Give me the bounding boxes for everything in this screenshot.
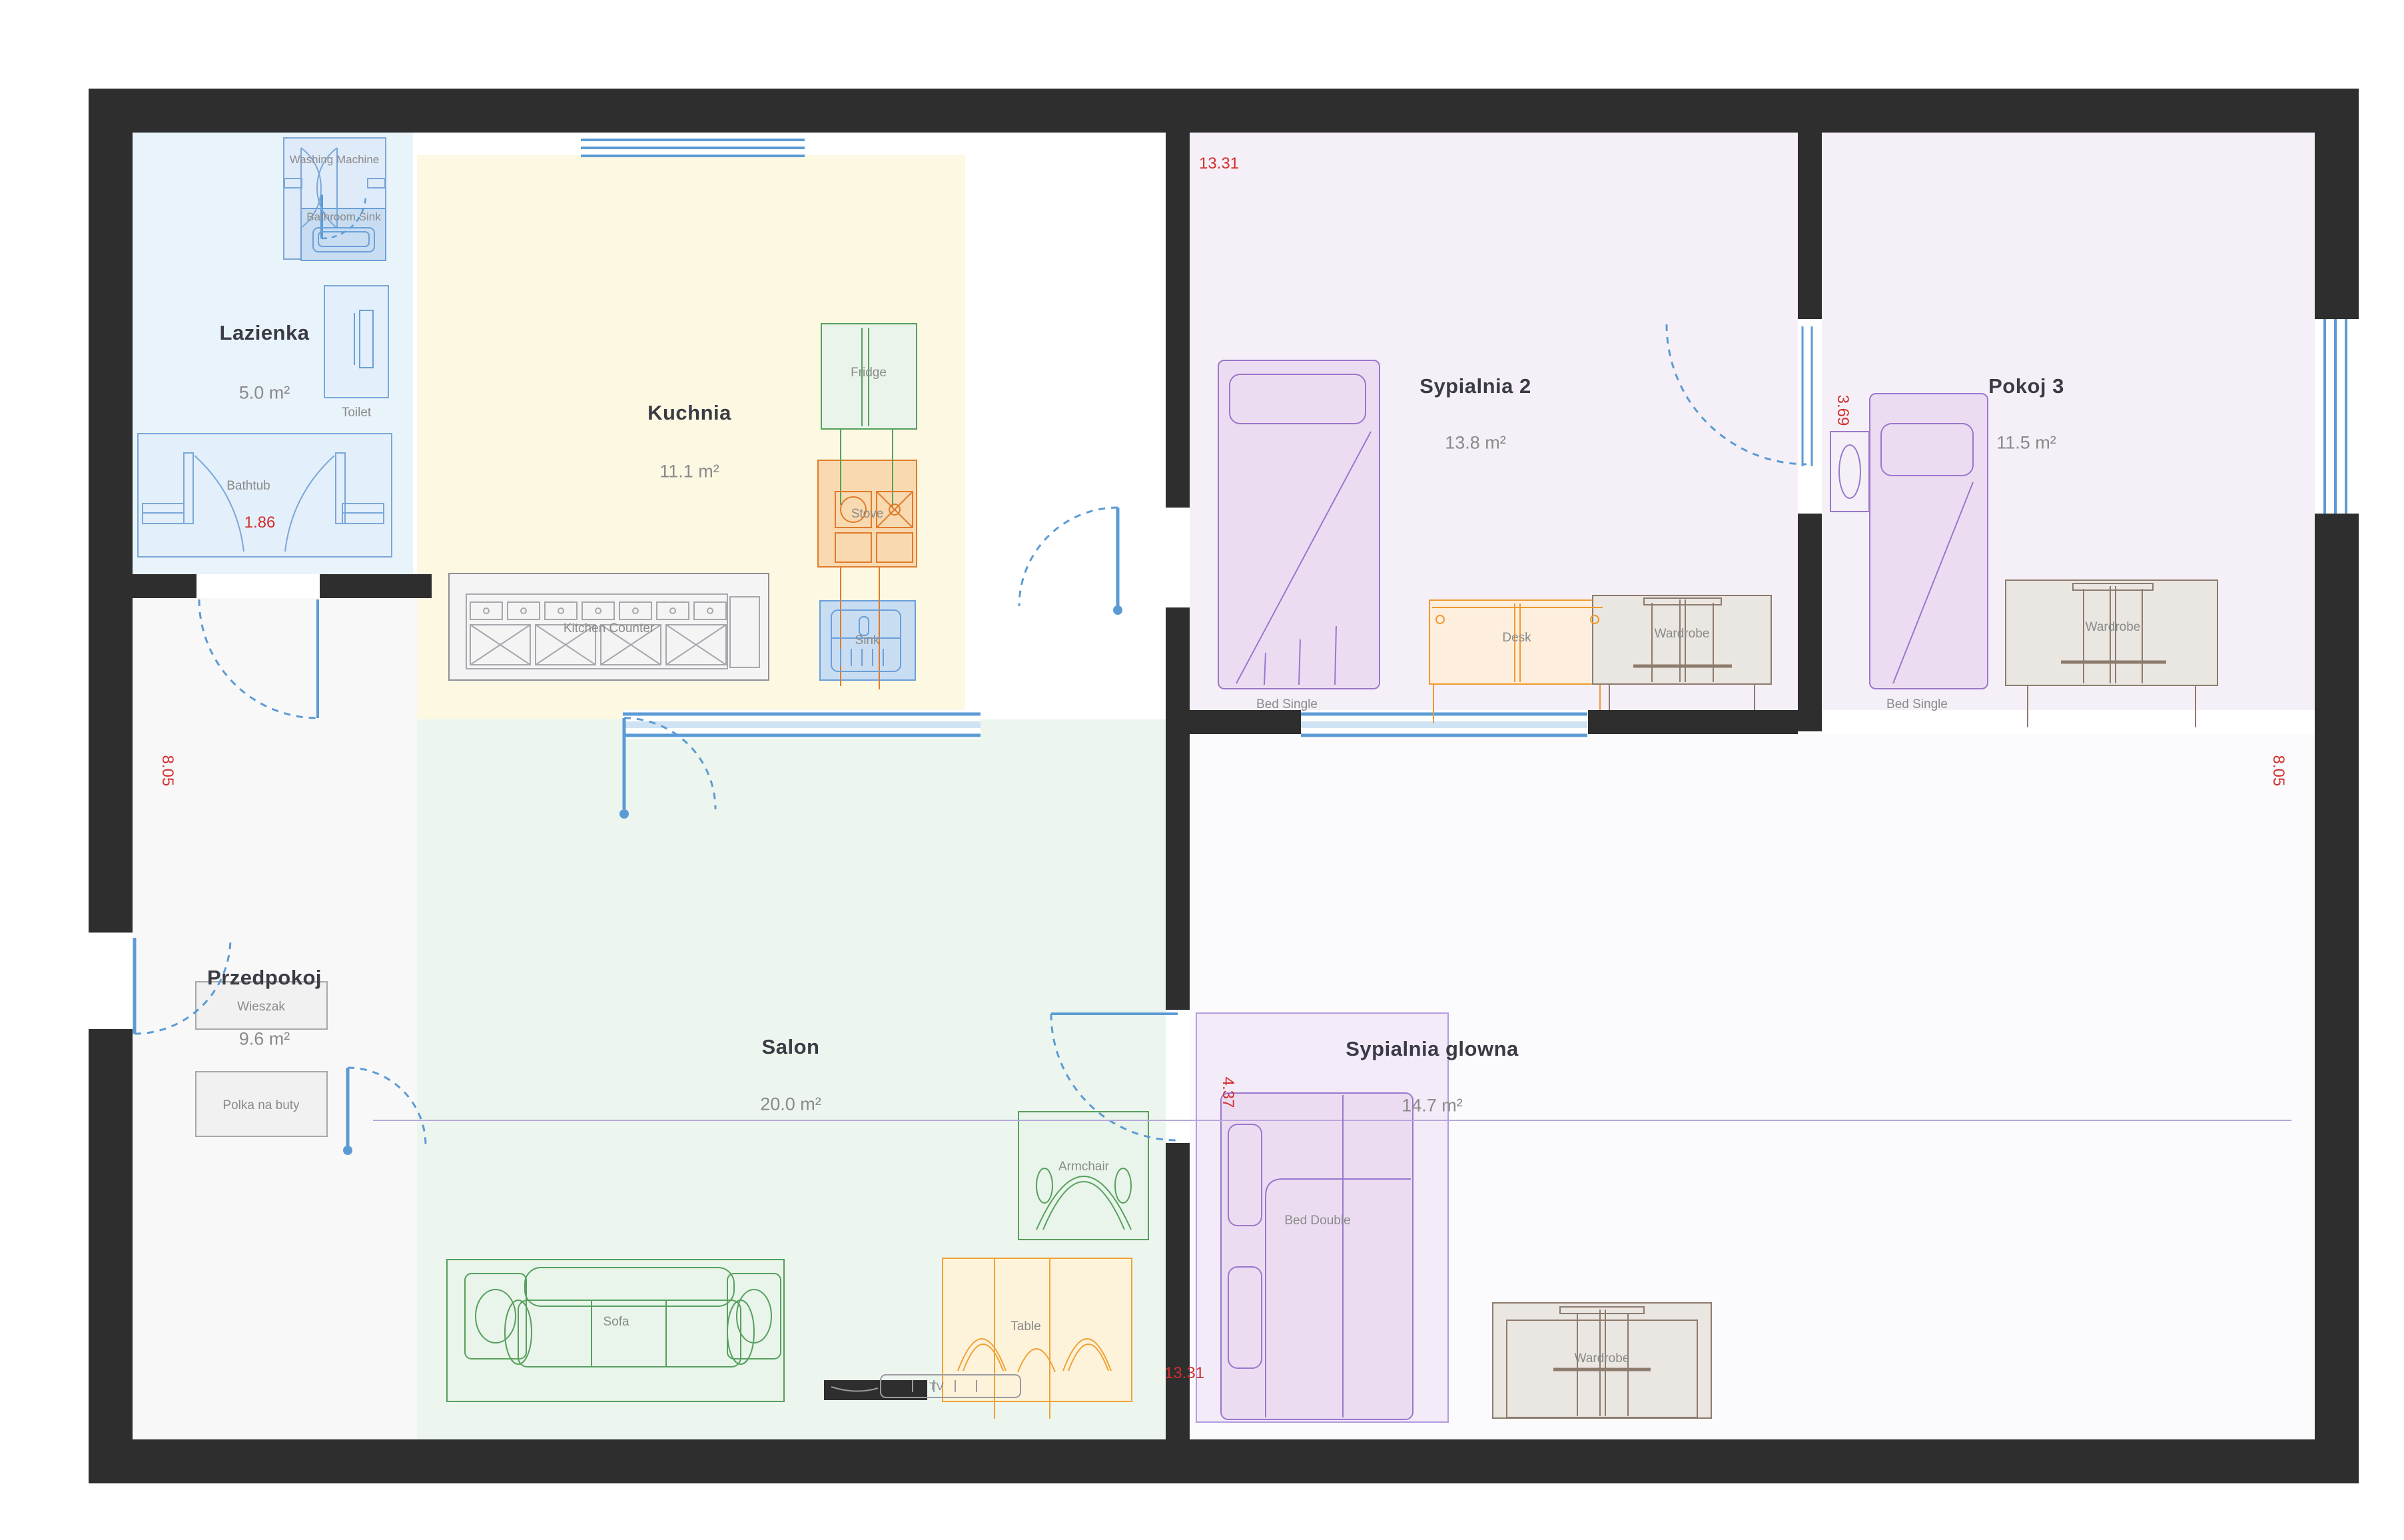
dimension-master: 4.37 [1218,1077,1237,1108]
wieszak-label: Wieszak [237,1000,285,1014]
sofa[interactable] [446,1259,785,1402]
room-title-lazienka: Lazienka [220,321,310,345]
fridge-label: Fridge [851,366,887,380]
table-label: Table [1010,1320,1040,1334]
wall-left-upper [89,133,133,933]
wall-top [89,89,2359,133]
floor-plan: Lazienka 5.0 m² Kuchnia 11.1 m² Salon 20… [0,0,2404,1540]
room-area-lazienka: 5.0 m² [239,383,290,404]
stove-label: Stove [851,507,884,522]
wall-left-lower [89,1029,133,1439]
wall-right-lower [2315,514,2359,1439]
window-kitchen-top-icon[interactable] [581,140,805,156]
armchair[interactable] [1018,1111,1149,1240]
bathroom-sink-label: Bathroom Sink [306,210,381,224]
room-area-pokoj3: 11.5 m² [1996,433,2056,454]
dimension-bathtub: 1.86 [244,514,276,532]
room-area-kuchnia: 11.1 m² [659,462,719,482]
wardrobe-s2-label: Wardrobe [1655,627,1710,641]
dimension-bottom: 13.31 [1164,1364,1204,1383]
wall-bathroom-left [133,574,197,598]
sofa-label: Sofa [603,1315,629,1330]
tv-label: TV [929,1380,944,1393]
polka-na-buty-label: Polka na buty [222,1098,299,1113]
wall-center-upper [1166,133,1190,508]
dimension-right: 8.05 [2269,755,2287,787]
wall-bathroom-right [320,574,432,598]
room-title-pokoj3: Pokoj 3 [1988,374,2064,398]
dimension-pokoj3: 3.69 [1833,395,1852,426]
wall-right-upper [2315,133,2359,319]
room-title-sypialnia2: Sypialnia 2 [1419,374,1531,398]
wall-bedrooms-upper [1798,133,1822,319]
washing-machine-label: Washing Machine [290,153,380,167]
bed-double-label: Bed Double [1284,1214,1350,1228]
wardrobe-master-label: Wardrobe [1575,1351,1630,1366]
bed-double[interactable] [1220,1092,1413,1420]
wardrobe-p3-label: Wardrobe [2086,620,2141,635]
wall-sypialnia2-bottom-right [1588,710,1798,734]
bathtub-label: Bathtub [226,479,270,494]
wall-center-middle [1166,607,1190,1010]
dimension-top: 13.31 [1199,155,1239,173]
bed-single-s2-label: Bed Single [1256,697,1318,712]
room-title-kuchnia: Kuchnia [647,401,731,425]
sypialnia2-door[interactable] [1019,508,1122,615]
wall-bottom [89,1439,2359,1483]
room-area-przedpokoj: 9.6 m² [239,1029,290,1050]
dimension-left: 8.05 [158,755,177,787]
room-area-sypialnia2: 13.8 m² [1445,433,1506,454]
toilet[interactable] [324,285,389,398]
room-area-sypialnia-glowna: 14.7 m² [1402,1096,1463,1116]
kitchen-counter-label: Kitchen Counter [564,621,654,636]
toilet-label: Toilet [342,406,371,420]
tv[interactable] [824,1380,927,1400]
desk-label: Desk [1502,631,1531,645]
room-title-przedpokoj: Przedpokoj [207,966,322,990]
armchair-label: Armchair [1058,1160,1109,1174]
bed-single-sypialnia2[interactable] [1218,360,1380,689]
room-title-salon: Salon [762,1035,820,1059]
wall-bedrooms-lower [1798,514,1822,731]
bed-single-p3-label: Bed Single [1886,697,1948,712]
window-pokoj3-right-icon[interactable] [2315,319,2359,514]
wall-sypialnia2-bottom-left [1190,710,1301,734]
wall-center-lower [1166,1143,1190,1439]
room-title-sypialnia-glowna: Sypialnia glowna [1346,1037,1519,1061]
bathtub[interactable] [137,433,392,558]
bed-single-pokoj3[interactable] [1869,393,1988,689]
kitchen-sink-label: Sink [855,633,880,648]
room-area-salon: 20.0 m² [760,1094,821,1115]
